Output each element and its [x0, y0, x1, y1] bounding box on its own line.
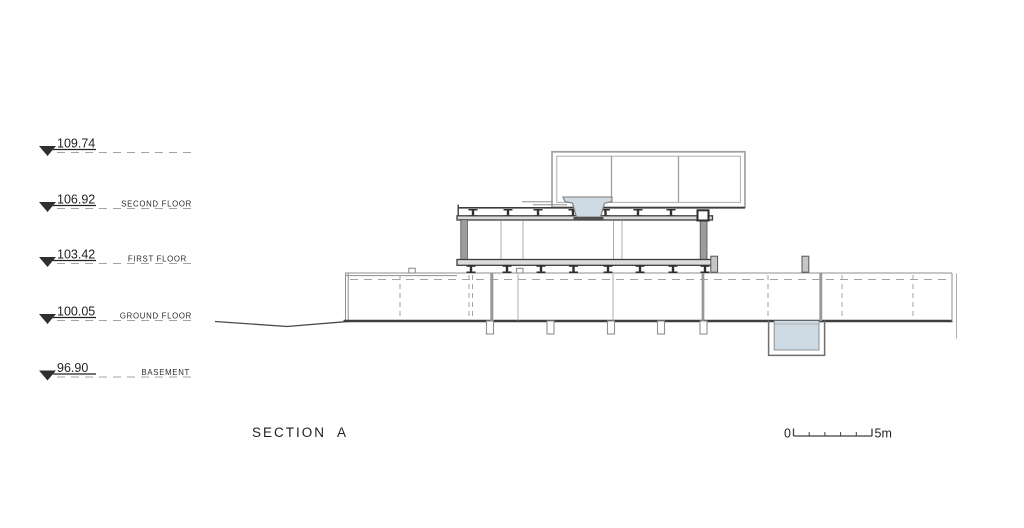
level-marker-triangle-icon [39, 314, 56, 324]
vent-post [711, 256, 718, 272]
basement-pool [769, 321, 825, 356]
terrain-line [215, 321, 350, 326]
level-marker-triangle-icon [39, 146, 56, 156]
level-marker-ground-floor: 100.05 GROUND FLOOR [39, 305, 193, 325]
footing [608, 321, 615, 334]
elevation-value: 109.74 [57, 137, 95, 151]
first-floor-block [457, 205, 809, 274]
level-label: FIRST FLOOR [128, 255, 187, 264]
vent-post [802, 256, 809, 272]
band-left-edge [345, 273, 457, 321]
level-marker-triangle-icon [39, 371, 56, 381]
level-label: SECOND FLOOR [121, 200, 192, 209]
level-marker-second-floor: 106.92 SECOND FLOOR [39, 193, 193, 213]
ground-floor-band [344, 268, 957, 338]
elevation-markers: 109.74 106.92 SECOND FLOOR 103.42 FIRST … [39, 137, 193, 381]
level-marker-basement: 96.90 BASEMENT [39, 361, 193, 381]
footing [487, 321, 494, 334]
footing [700, 321, 707, 334]
floor-stub-columns [467, 265, 710, 273]
foundation-footings [487, 321, 708, 334]
band-dashed-partitions [400, 275, 913, 320]
elevation-value: 100.05 [57, 305, 95, 319]
scale-bar: 0 5m [784, 427, 892, 441]
section-drawing: 109.74 106.92 SECOND FLOOR 103.42 FIRST … [0, 0, 1024, 528]
beam-section-box [698, 210, 709, 220]
roof-pad [409, 268, 416, 273]
level-label: BASEMENT [142, 368, 191, 377]
first-floor-right-wall [700, 220, 707, 261]
band-wall-cut [819, 273, 822, 321]
scale-zero-label: 0 [784, 427, 791, 441]
elevation-value: 96.90 [57, 361, 88, 375]
level-marker-first-floor: 103.42 FIRST FLOOR [39, 248, 193, 268]
first-floor-bottom-slab [457, 260, 713, 266]
scale-max-label: 5m [875, 427, 892, 441]
scale-bar-line [794, 429, 873, 437]
first-floor-partitions [501, 221, 622, 259]
pool-water [774, 321, 819, 350]
tub-base [574, 217, 604, 221]
level-marker-triangle-icon [39, 202, 56, 212]
elevation-value: 106.92 [57, 193, 95, 207]
band-wall-cut [702, 273, 705, 321]
band-wall-cut [490, 273, 493, 321]
first-floor-left-wall [461, 220, 468, 261]
level-label: GROUND FLOOR [120, 312, 192, 321]
level-marker-roof: 109.74 [39, 137, 193, 157]
roof-pad [517, 268, 524, 273]
band-thin-partitions [518, 274, 704, 321]
footing [547, 321, 554, 334]
elevation-value: 103.42 [57, 248, 95, 262]
level-marker-triangle-icon [39, 257, 56, 267]
section-drawing-sheet: 109.74 106.92 SECOND FLOOR 103.42 FIRST … [0, 0, 1024, 528]
drawing-title: SECTION A [252, 425, 348, 440]
footing [658, 321, 665, 334]
